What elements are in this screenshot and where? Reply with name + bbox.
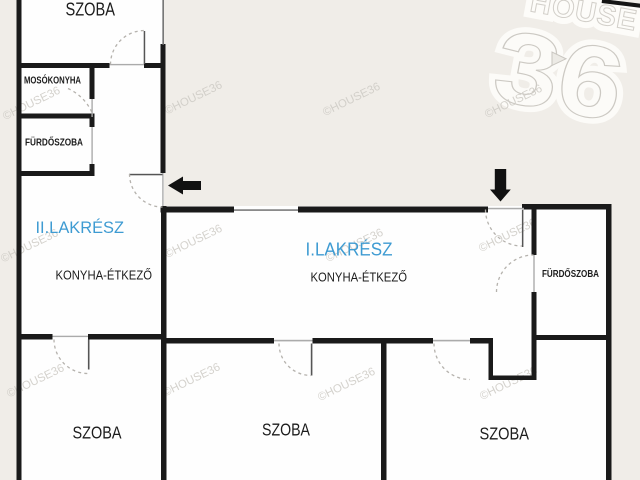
svg-text:FÜRDŐSZOBA: FÜRDŐSZOBA: [542, 267, 599, 280]
svg-text:KONYHA-ÉTKEZŐ: KONYHA-ÉTKEZŐ: [56, 268, 153, 283]
svg-text:SZOBA: SZOBA: [73, 423, 122, 443]
svg-text:FÜRDŐSZOBA: FÜRDŐSZOBA: [25, 136, 83, 149]
svg-text:SZOBA: SZOBA: [480, 424, 530, 444]
svg-text:I.LAKRÉSZ: I.LAKRÉSZ: [306, 240, 393, 260]
svg-text:SZOBA: SZOBA: [262, 420, 310, 440]
svg-text:36: 36: [486, 8, 633, 144]
svg-text:SZOBA: SZOBA: [66, 0, 116, 20]
svg-text:KONYHA-ÉTKEZŐ: KONYHA-ÉTKEZŐ: [311, 270, 408, 285]
svg-text:II.LAKRÉSZ: II.LAKRÉSZ: [36, 218, 125, 237]
svg-text:MOSÓKONYHA: MOSÓKONYHA: [24, 74, 81, 87]
